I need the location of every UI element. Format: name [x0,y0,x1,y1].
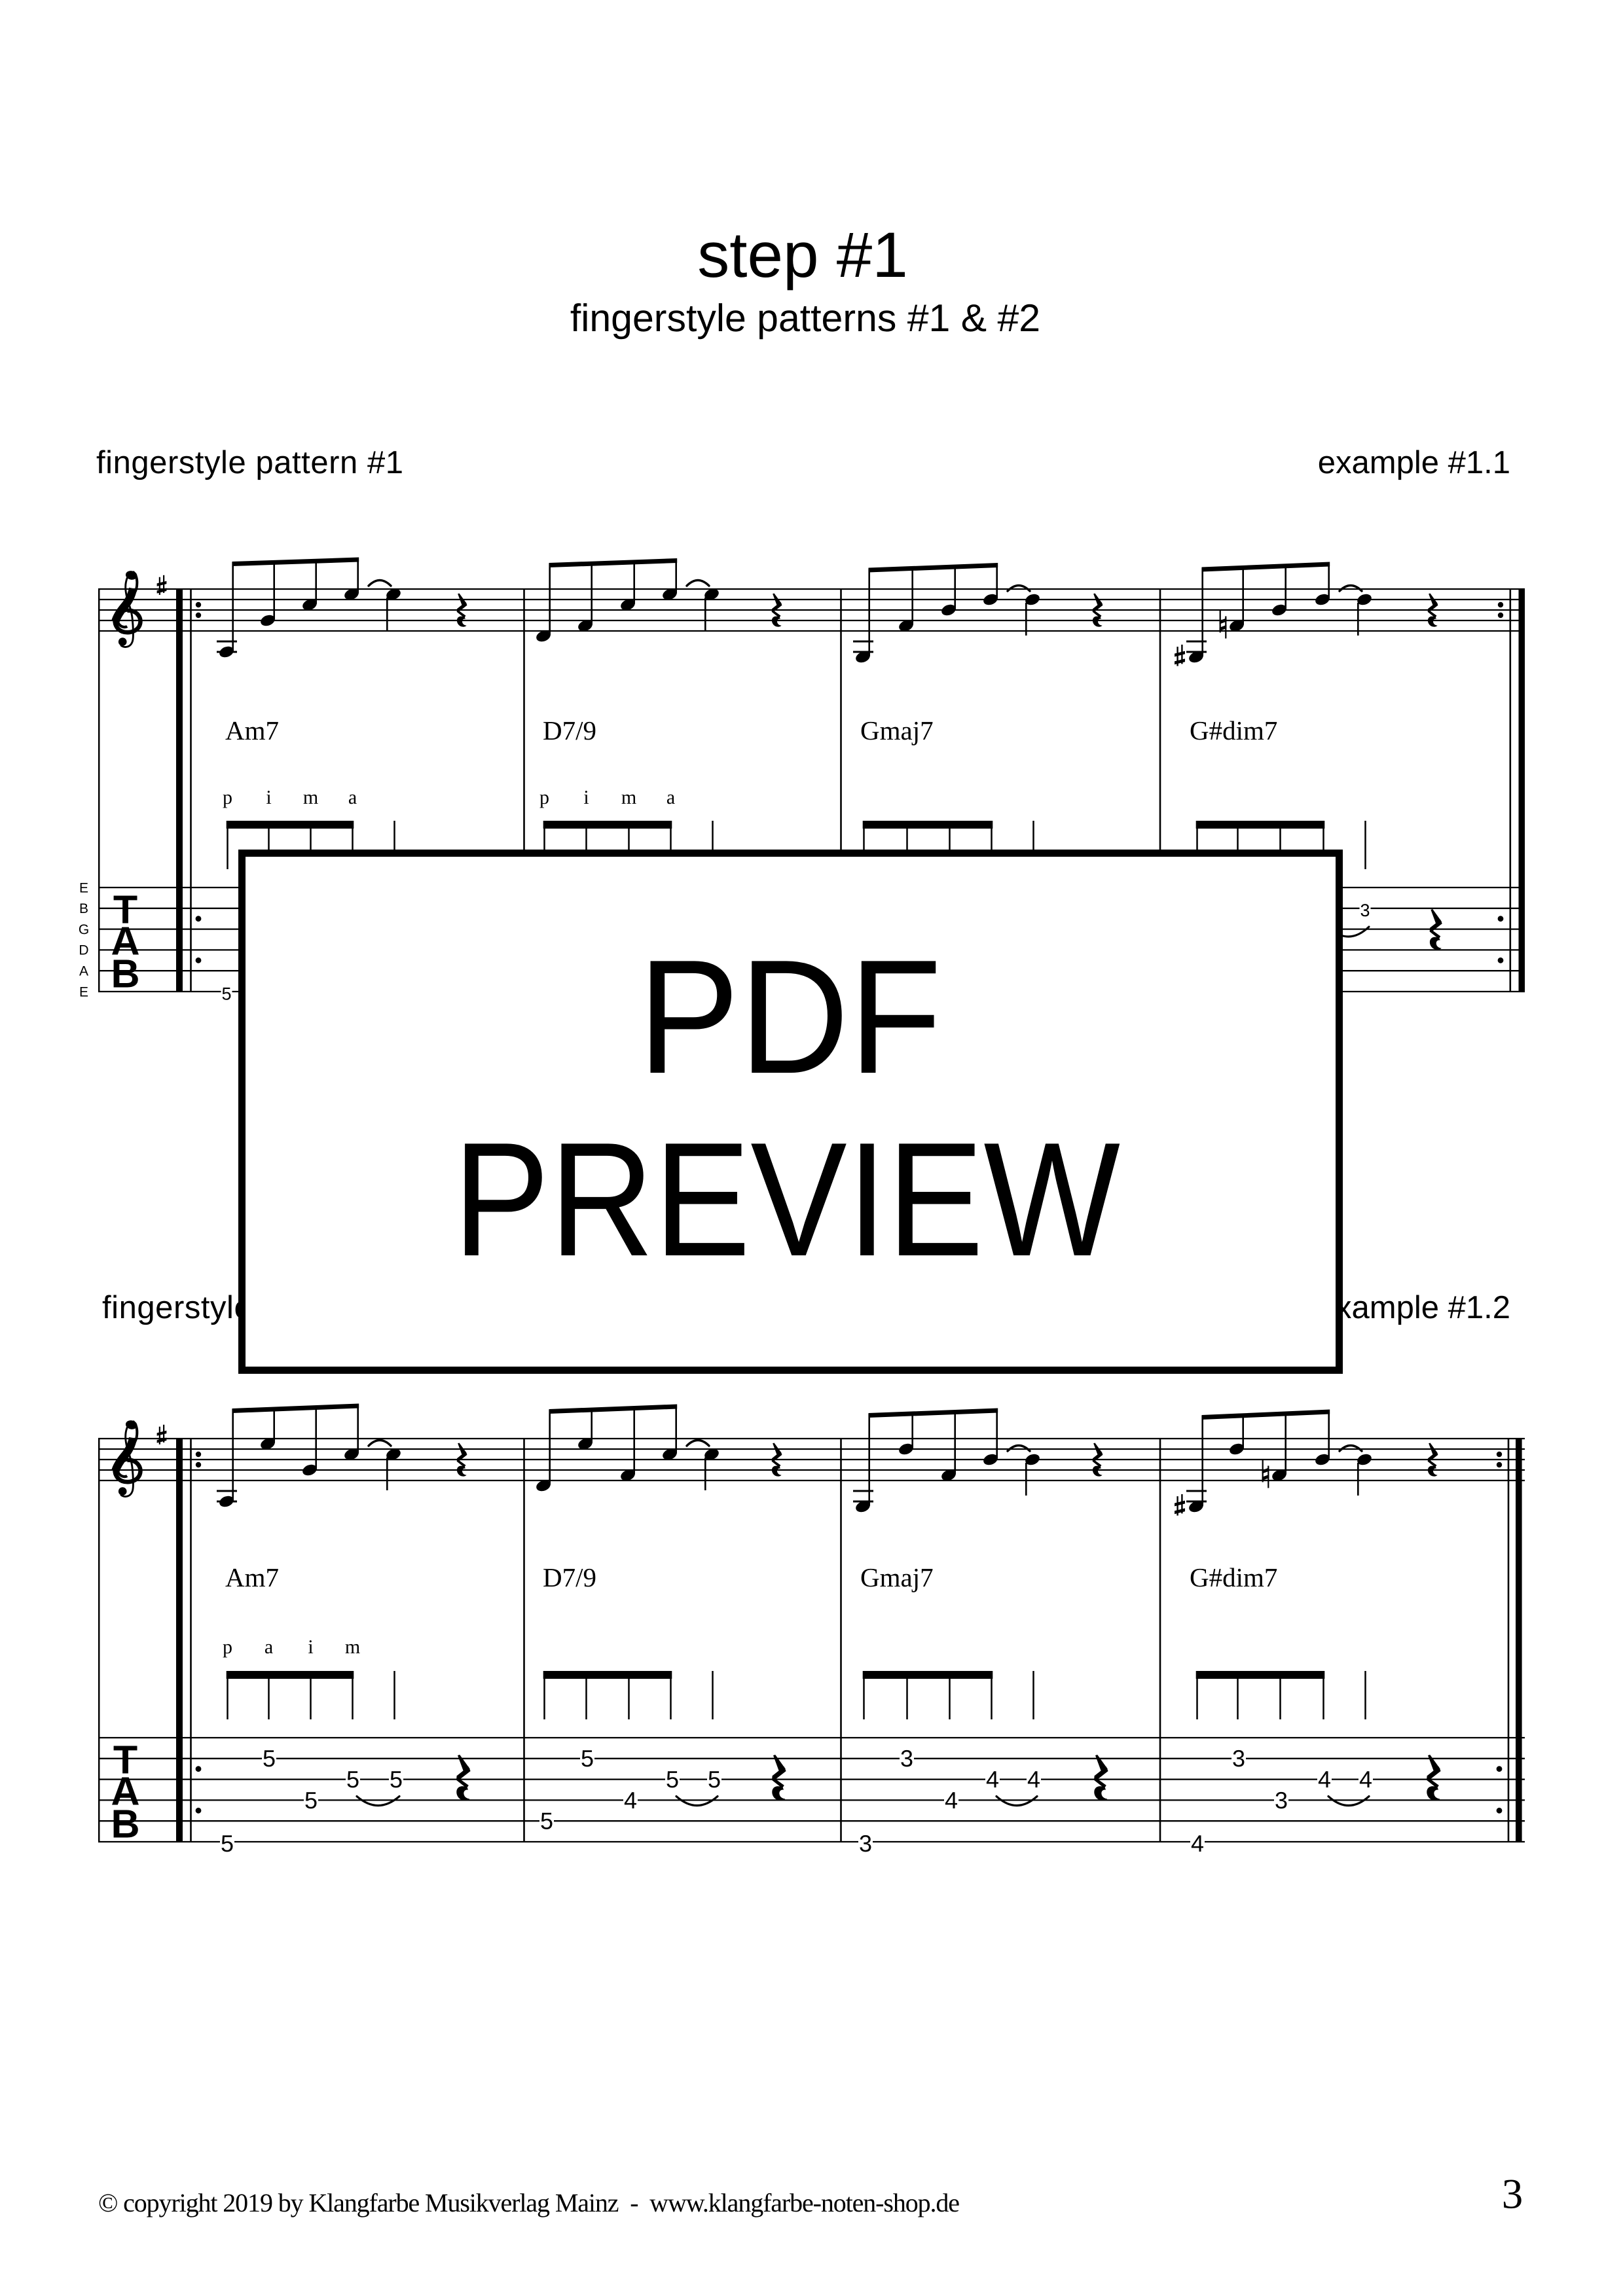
svg-text:m: m [303,787,318,808]
svg-text:5: 5 [390,1766,403,1793]
svg-text:Gmaj7: Gmaj7 [860,1562,934,1592]
svg-text:3: 3 [1502,2171,1523,2218]
svg-text:5: 5 [540,1808,553,1835]
svg-text:i: i [583,787,589,808]
svg-text:p: p [223,787,232,808]
svg-text:4: 4 [1027,1766,1040,1793]
svg-text:i: i [308,1636,313,1658]
svg-text:D: D [79,943,88,958]
svg-text:G#dim7: G#dim7 [1190,1562,1277,1592]
svg-text:5: 5 [221,1830,234,1857]
svg-text:a: a [666,787,675,808]
svg-text:D7/9: D7/9 [543,1562,596,1592]
svg-text:B: B [111,952,139,996]
svg-text:a: a [264,1636,273,1658]
svg-text:step #1: step #1 [697,219,907,291]
svg-text:B: B [79,901,88,916]
svg-text:3: 3 [859,1830,872,1857]
svg-text:4: 4 [1191,1830,1204,1857]
svg-text:Gmaj7: Gmaj7 [860,715,934,745]
svg-text:p: p [539,787,549,808]
svg-text:3: 3 [1275,1787,1288,1814]
svg-text:i: i [266,787,271,808]
svg-text:E: E [79,880,88,895]
svg-text:Am7: Am7 [225,1562,279,1592]
svg-text:Am7: Am7 [225,715,279,745]
svg-text:example #1.2: example #1.2 [1318,1290,1510,1325]
svg-text:4: 4 [1318,1766,1331,1793]
svg-text:G: G [79,922,89,937]
svg-text:4: 4 [945,1787,958,1814]
svg-text:© copyright 2019 by Klangfarbe: © copyright 2019 by Klangfarbe Musikverl… [98,2188,960,2217]
svg-text:5: 5 [221,984,231,1003]
svg-text:4: 4 [624,1787,637,1814]
svg-text:fingerstyle pattern #1: fingerstyle pattern #1 [96,445,403,480]
svg-text:m: m [345,1636,360,1658]
svg-text:3: 3 [1232,1745,1245,1772]
svg-text:p: p [223,1636,232,1658]
svg-text:5: 5 [263,1745,276,1772]
svg-text:B: B [111,1802,139,1846]
svg-text:fingerstyle patterns #1 & #2: fingerstyle patterns #1 & #2 [570,296,1040,340]
svg-text:A: A [79,964,88,979]
svg-text:5: 5 [708,1766,721,1793]
svg-text:5: 5 [346,1766,359,1793]
svg-text:3: 3 [900,1745,913,1772]
svg-text:D7/9: D7/9 [543,715,596,745]
svg-text:m: m [621,787,636,808]
svg-text:5: 5 [304,1787,318,1814]
svg-text:5: 5 [666,1766,679,1793]
svg-text:E: E [79,984,88,999]
svg-text:PREVIEW: PREVIEW [453,1108,1120,1290]
svg-text:3: 3 [1360,901,1370,920]
svg-text:4: 4 [986,1766,999,1793]
svg-text:G#dim7: G#dim7 [1190,715,1277,745]
svg-text:5: 5 [581,1745,594,1772]
svg-text:example #1.1: example #1.1 [1318,445,1510,480]
svg-text:4: 4 [1359,1766,1372,1793]
svg-text:a: a [348,787,357,808]
svg-text:PDF: PDF [638,925,942,1107]
